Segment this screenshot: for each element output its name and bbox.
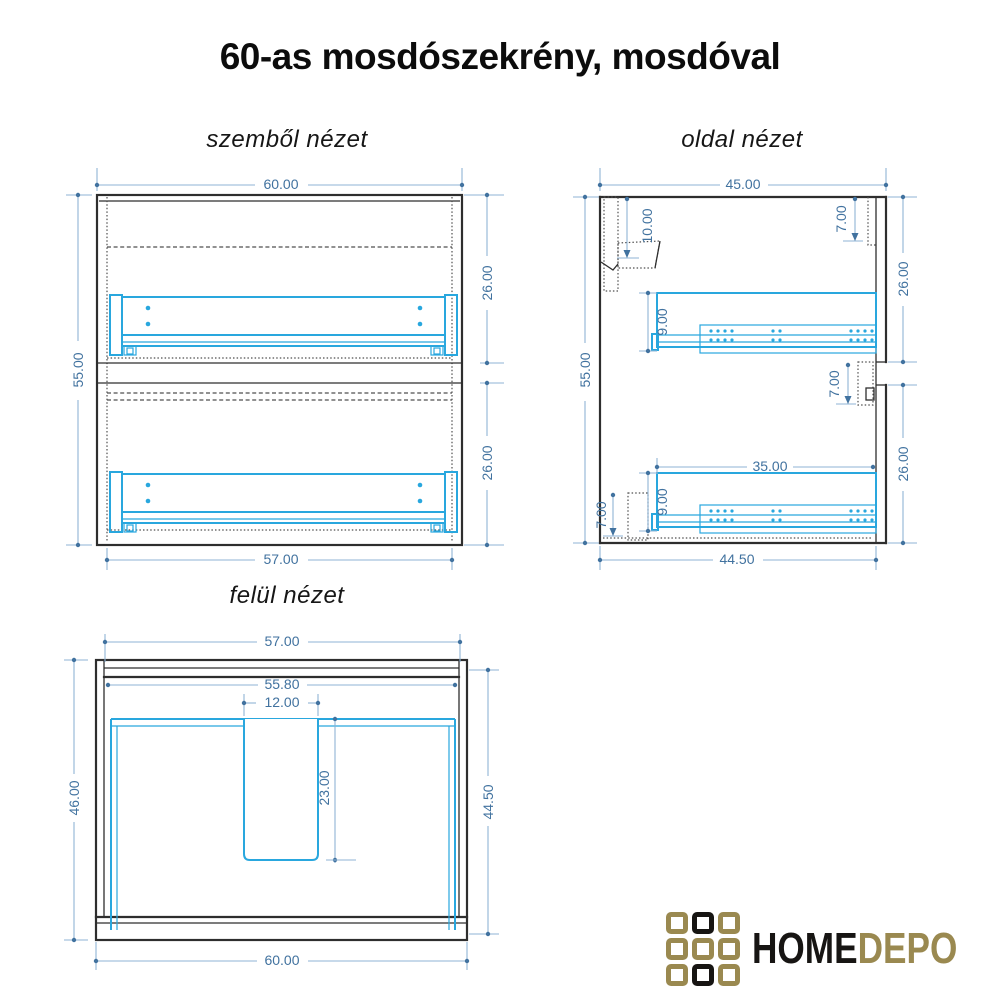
side-dim-bottom-front: 26.00 bbox=[888, 383, 917, 545]
svg-text:7.00: 7.00 bbox=[833, 205, 849, 232]
homedepo-grid-icon bbox=[666, 912, 740, 986]
side-dim-bottom-rail: 9.00 bbox=[639, 471, 670, 533]
homedepo-logo: HOMEDEPO bbox=[666, 912, 1000, 986]
side-dim-carcass-depth: 44.50 bbox=[598, 546, 878, 570]
svg-text:57.00: 57.00 bbox=[264, 633, 299, 649]
svg-text:7.00: 7.00 bbox=[826, 370, 842, 397]
svg-text:7.00: 7.00 bbox=[593, 501, 609, 528]
front-dim-overall-height: 55.00 bbox=[66, 193, 92, 547]
svg-text:26.00: 26.00 bbox=[895, 446, 911, 481]
grid-cell bbox=[666, 964, 688, 986]
top-dim-inner-width: 55.80 bbox=[106, 676, 457, 692]
wordmark-depo: DEPO bbox=[858, 924, 958, 973]
svg-text:23.00: 23.00 bbox=[316, 770, 332, 805]
side-dim-rail-length: 35.00 bbox=[655, 458, 875, 474]
front-view-label: szemből nézet bbox=[40, 126, 534, 154]
side-view-label: oldal nézet bbox=[560, 126, 924, 154]
grid-cell bbox=[718, 964, 740, 986]
side-dim-overall-height: 55.00 bbox=[573, 195, 599, 545]
front-top-drawer-hardware bbox=[110, 295, 457, 355]
side-dim-mid-inset: 7.00 bbox=[826, 363, 856, 404]
side-cabinet-outline bbox=[600, 197, 886, 543]
svg-text:9.00: 9.00 bbox=[654, 308, 670, 335]
svg-text:26.00: 26.00 bbox=[895, 261, 911, 296]
top-siphon-cutout bbox=[244, 719, 318, 860]
svg-text:44.50: 44.50 bbox=[719, 551, 754, 567]
top-dim-basin-width: 60.00 bbox=[94, 942, 469, 970]
page-title: 60-as mosdószekrény, mosdóval bbox=[0, 36, 1000, 78]
grid-cell bbox=[718, 912, 740, 934]
svg-text:55.00: 55.00 bbox=[70, 352, 86, 387]
side-dim-top-front: 26.00 bbox=[888, 195, 917, 364]
homedepo-wordmark: HOMEDEPO bbox=[752, 912, 957, 986]
front-dim-overall-width: 60.00 bbox=[95, 168, 464, 192]
side-bottom-drawer-hardware bbox=[652, 473, 876, 533]
svg-text:9.00: 9.00 bbox=[654, 488, 670, 515]
side-dim-top-inset: 7.00 bbox=[833, 197, 863, 241]
svg-text:60.00: 60.00 bbox=[263, 176, 298, 192]
svg-text:26.00: 26.00 bbox=[479, 445, 495, 480]
side-view-drawing: 45.00 55.00 26.00 26.00 44.50 bbox=[555, 158, 985, 588]
svg-text:55.80: 55.80 bbox=[264, 676, 299, 692]
side-top-drawer-hardware bbox=[652, 293, 876, 353]
side-dim-overall-depth: 45.00 bbox=[598, 168, 888, 192]
top-dim-cutout-width: 12.00 bbox=[242, 694, 320, 716]
svg-text:46.00: 46.00 bbox=[66, 780, 82, 815]
front-dim-bottom-drawer: 26.00 bbox=[464, 381, 504, 547]
front-dim-top-drawer: 26.00 bbox=[464, 193, 504, 365]
front-cabinet-outline bbox=[97, 195, 462, 545]
side-dim-hanger: 10.00 bbox=[617, 197, 655, 258]
top-dim-cabinet-depth: 44.50 bbox=[469, 668, 499, 936]
svg-text:26.00: 26.00 bbox=[479, 265, 495, 300]
front-bottom-drawer-hardware bbox=[110, 472, 457, 532]
wordmark-home: HOME bbox=[752, 924, 858, 973]
grid-cell bbox=[666, 912, 688, 934]
top-dim-cutout-depth: 23.00 bbox=[316, 717, 356, 863]
grid-cell bbox=[692, 964, 714, 986]
side-dim-top-rail: 9.00 bbox=[639, 291, 670, 353]
grid-cell bbox=[718, 938, 740, 960]
top-view-drawing: 57.00 55.80 12.00 23.00 46.00 bbox=[40, 630, 540, 1000]
grid-cell bbox=[666, 938, 688, 960]
svg-text:10.00: 10.00 bbox=[639, 208, 655, 243]
grid-cell bbox=[692, 938, 714, 960]
top-dim-basin-depth: 46.00 bbox=[64, 658, 88, 942]
svg-text:57.00: 57.00 bbox=[263, 551, 298, 567]
grid-cell bbox=[692, 912, 714, 934]
front-dim-inner-width: 57.00 bbox=[105, 548, 454, 570]
svg-text:35.00: 35.00 bbox=[752, 458, 787, 474]
drawing-sheet: 60-as mosdószekrény, mosdóval szemből né… bbox=[0, 0, 1000, 1000]
svg-text:60.00: 60.00 bbox=[264, 952, 299, 968]
svg-text:45.00: 45.00 bbox=[725, 176, 760, 192]
svg-text:55.00: 55.00 bbox=[577, 352, 593, 387]
front-view-drawing: 60.00 55.00 26.00 26.00 57.00 bbox=[40, 158, 540, 588]
svg-text:44.50: 44.50 bbox=[480, 784, 496, 819]
side-dim-back-inset: 7.00 bbox=[593, 493, 623, 536]
svg-text:12.00: 12.00 bbox=[264, 694, 299, 710]
top-dim-cabinet-width: 57.00 bbox=[103, 633, 462, 662]
